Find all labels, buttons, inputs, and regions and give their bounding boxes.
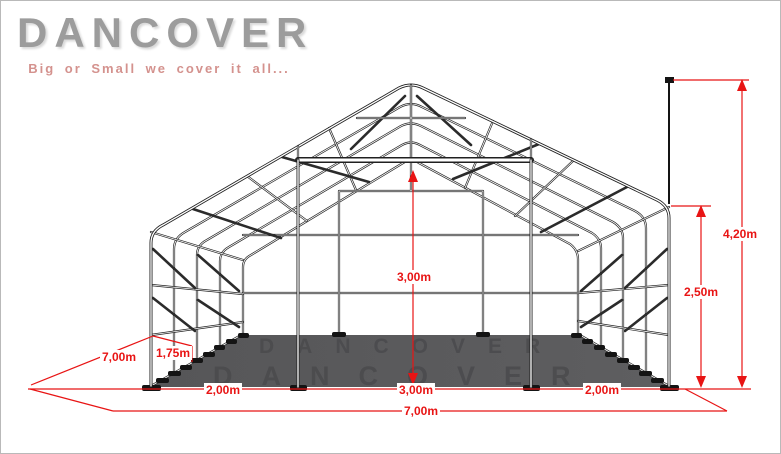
dim-label-side-height: 2,50m <box>682 285 720 299</box>
height-extension-line <box>665 77 674 204</box>
floor-watermark-row1: DANCOVER <box>259 335 563 358</box>
dim-label-door-width: 3,00m <box>397 383 435 397</box>
dim-label-interior-height: 3,00m <box>395 270 433 284</box>
dim-label-total-width: 7,00m <box>402 404 440 418</box>
dim-label-left-bay-width: 2,00m <box>204 383 242 397</box>
dim-label-frame-spacing: 1,75m <box>154 346 192 360</box>
dim-label-total-depth: 7,00m <box>100 350 138 364</box>
dim-label-right-bay-width: 2,00m <box>583 383 621 397</box>
dim-label-total-height: 4,20m <box>721 227 759 241</box>
dancover-tent-diagram: DANCOVER Big or Small we cover it all... <box>0 0 781 454</box>
tent-wireframe-drawing: DANCOVER DANCOVER <box>1 1 781 454</box>
